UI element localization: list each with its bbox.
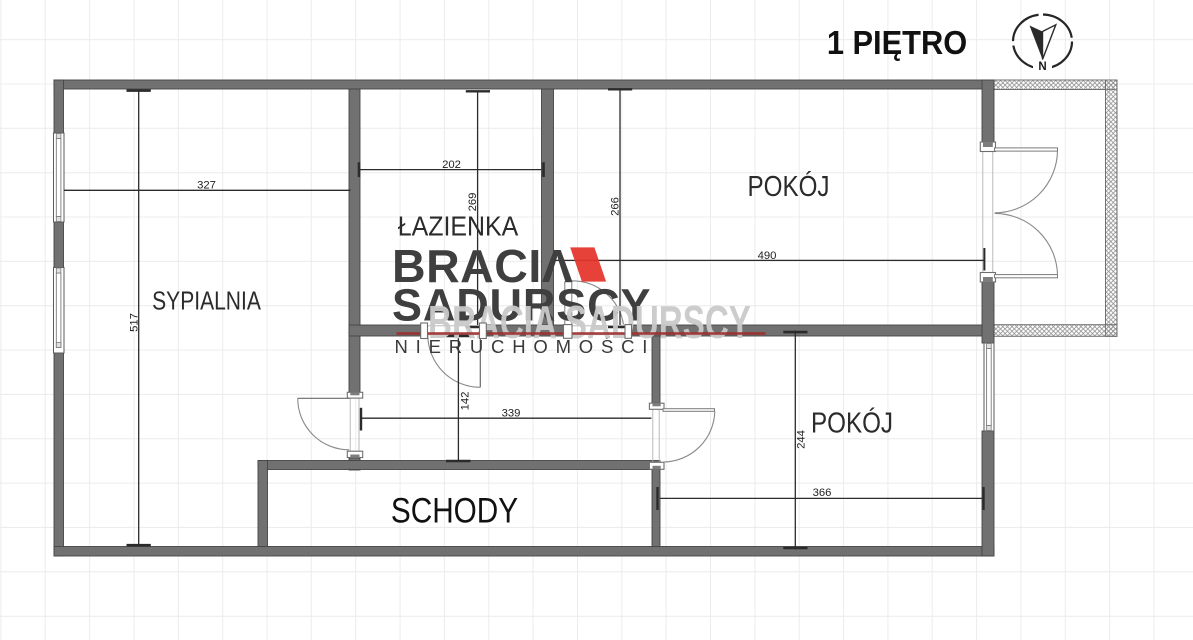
svg-text:269: 269 — [467, 193, 479, 212]
svg-text:202: 202 — [442, 159, 461, 171]
svg-text:142: 142 — [459, 392, 471, 411]
svg-text:POKÓJ: POKÓJ — [747, 170, 829, 202]
svg-text:517: 517 — [128, 313, 140, 332]
svg-text:366: 366 — [813, 487, 832, 499]
svg-text:327: 327 — [197, 180, 216, 192]
svg-text:ŁAZIENKA: ŁAZIENKA — [398, 210, 519, 242]
svg-text:SCHODY: SCHODY — [391, 491, 518, 530]
svg-text:339: 339 — [502, 407, 521, 419]
svg-text:1 PIĘTRO: 1 PIĘTRO — [827, 24, 967, 61]
svg-text:POKÓJ: POKÓJ — [811, 407, 893, 439]
svg-text:244: 244 — [796, 430, 808, 449]
svg-text:490: 490 — [758, 250, 777, 262]
svg-text:SYPIALNIA: SYPIALNIA — [152, 288, 261, 317]
svg-text:N: N — [1038, 61, 1046, 73]
svg-text:266: 266 — [610, 197, 622, 216]
svg-text:BRACIA SADURSCY: BRACIA SADURSCY — [428, 295, 751, 348]
